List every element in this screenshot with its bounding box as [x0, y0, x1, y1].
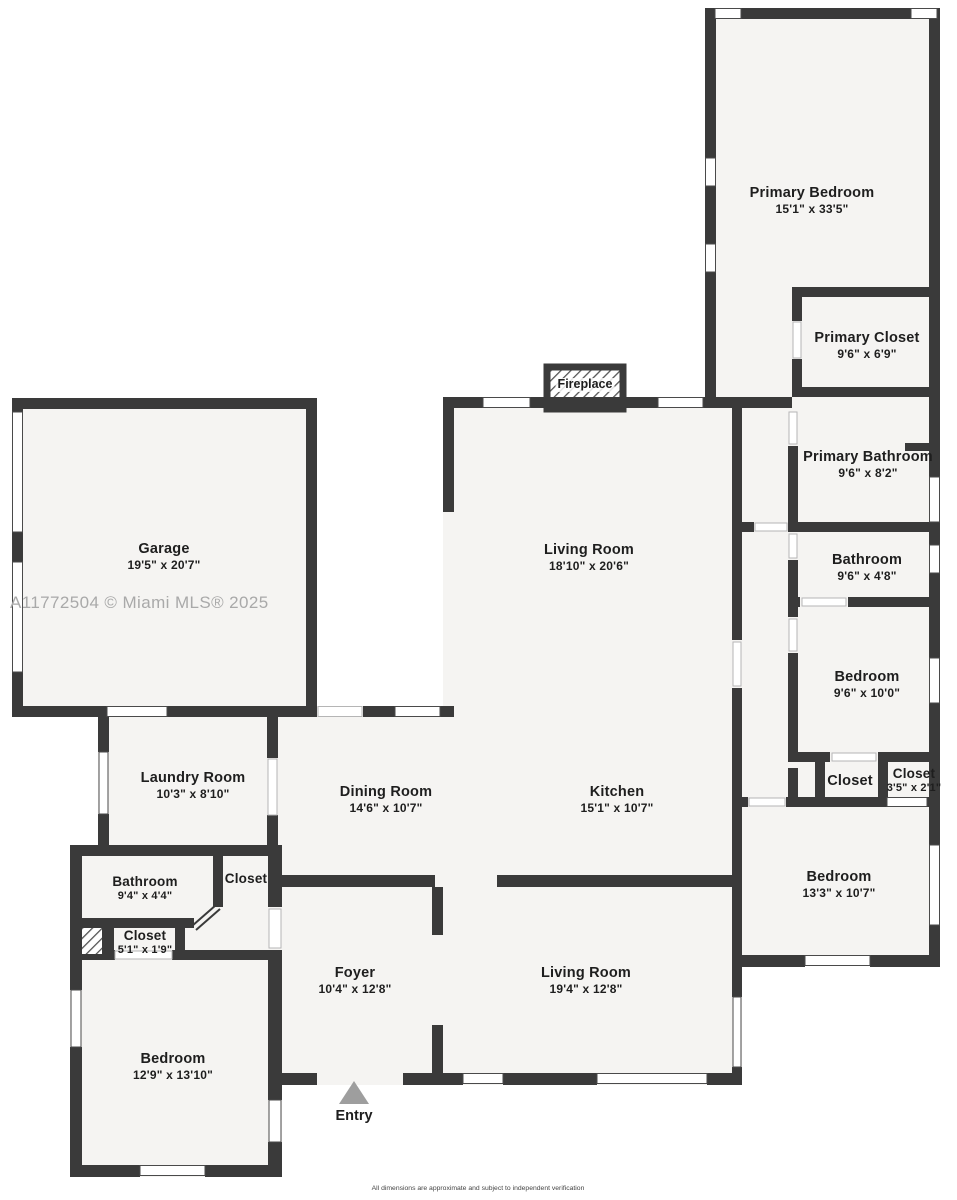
room-label-foyer: Foyer 10'4" x 12'8" [318, 965, 391, 997]
room-label-primary-bathroom: Primary Bathroom 9'6" x 8'2" [803, 449, 933, 481]
hatched-area [80, 926, 104, 956]
room-label-bathroom-right: Bathroom 9'6" x 4'8" [832, 552, 902, 584]
room-label-dining-room: Dining Room 14'6" x 10'7" [340, 784, 432, 816]
mls-watermark: A11772504 © Miami MLS® 2025 [10, 593, 269, 613]
dimensions-disclaimer: All dimensions are approximate and subje… [372, 1185, 585, 1192]
room-label-living-room-lower: Living Room 19'4" x 12'8" [541, 965, 631, 997]
room-label-primary-bedroom: Primary Bedroom 15'1" x 33'5" [750, 185, 875, 217]
room-label-laundry-room: Laundry Room 10'3" x 8'10" [141, 770, 246, 802]
floorplan-canvas: Garage 19'5" x 20'7" Laundry Room 10'3" … [0, 0, 957, 1200]
room-label-bathroom-left: Bathroom 9'4" x 4'4" [112, 874, 177, 903]
room-label-closet-2: Closet 3'5" x 2'1" [887, 766, 942, 795]
room-label-closet-hall: Closet [225, 871, 267, 887]
room-label-bedroom-bottom-left: Bedroom 12'9" x 13'10" [133, 1051, 213, 1083]
room-label-primary-closet: Primary Closet 9'6" x 6'9" [814, 330, 919, 362]
room-label-kitchen: Kitchen 15'1" x 10'7" [580, 784, 653, 816]
fireplace-label: Fireplace [556, 378, 615, 392]
room-label-closet-1: Closet [827, 773, 873, 790]
room-label-bedroom-right: Bedroom 9'6" x 10'0" [834, 669, 900, 701]
room-label-garage: Garage 19'5" x 20'7" [127, 541, 200, 573]
room-label-closet-small: Closet 5'1" x 1'9" [118, 928, 173, 957]
room-label-bedroom-13: Bedroom 13'3" x 10'7" [802, 869, 875, 901]
room-label-living-room-upper: Living Room 18'10" x 20'6" [544, 542, 634, 574]
entry-label: Entry [335, 1108, 372, 1124]
